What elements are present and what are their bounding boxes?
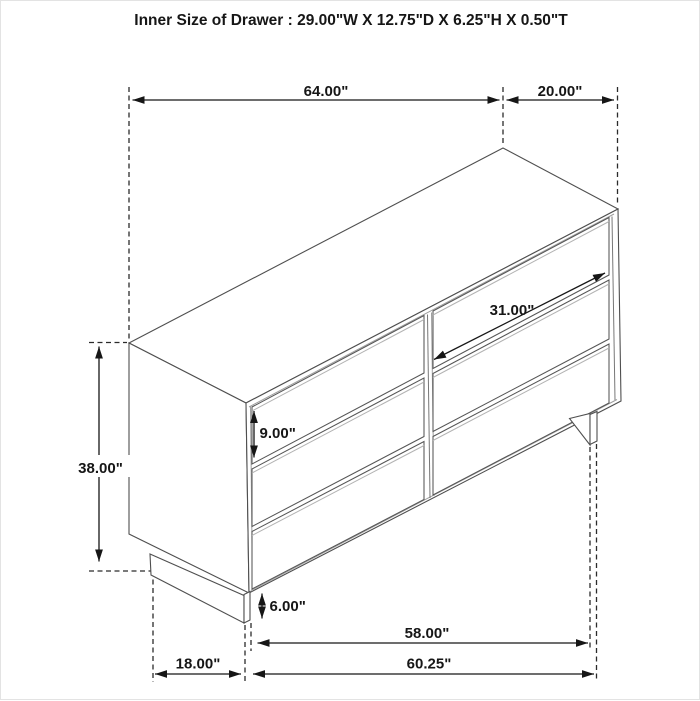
dim-bottom-width-label: 60.25" xyxy=(407,656,452,673)
dim-overall-height-label: 38.00" xyxy=(78,460,123,477)
diagram-svg: Inner Size of Drawer : 29.00"W X 12.75"D… xyxy=(1,1,700,701)
dim-base-depth: 18.00" xyxy=(155,656,241,675)
dim-bottom-width: 60.25" xyxy=(253,656,594,675)
dim-base-height: 6.00" xyxy=(262,594,306,619)
dim-overall-width: 64.00" xyxy=(133,83,500,100)
dim-overall-depth-label: 20.00" xyxy=(538,83,583,100)
right-base-runner xyxy=(570,414,591,446)
dim-base-depth-label: 18.00" xyxy=(176,656,221,673)
dim-overall-height: 38.00" xyxy=(71,347,130,562)
dim-base-front-width: 58.00" xyxy=(258,625,589,643)
dim-overall-width-label: 64.00" xyxy=(304,83,349,100)
dim-overall-depth: 20.00" xyxy=(507,83,615,100)
dresser-dimension-diagram: Inner Size of Drawer : 29.00"W X 12.75"D… xyxy=(0,0,700,700)
dim-drawer-width-label: 31.00" xyxy=(490,302,535,319)
diagram-title: Inner Size of Drawer : 29.00"W X 12.75"D… xyxy=(134,12,568,29)
dresser-drawing xyxy=(129,148,621,623)
dim-base-front-width-label: 58.00" xyxy=(405,625,450,642)
dim-drawer-height-label: 9.00" xyxy=(260,425,296,442)
front-right-leg xyxy=(590,412,597,445)
dim-base-height-label: 6.00" xyxy=(270,598,306,615)
front-left-leg xyxy=(244,592,250,624)
